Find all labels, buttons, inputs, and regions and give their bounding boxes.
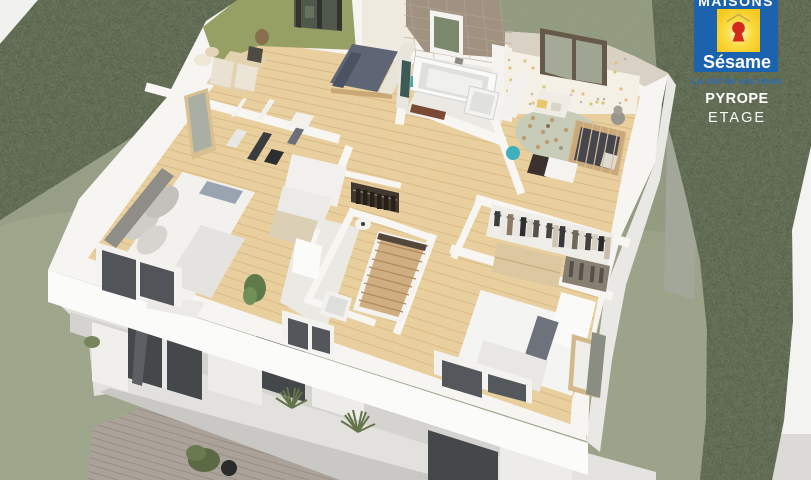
- svg-text:MAISONS: MAISONS: [698, 0, 774, 9]
- svg-text:Sésame: Sésame: [703, 52, 771, 72]
- svg-text:La clef de vos rêves: La clef de vos rêves: [692, 76, 782, 87]
- svg-text:ETAGE: ETAGE: [708, 110, 766, 126]
- svg-text:PYROPE: PYROPE: [705, 91, 768, 107]
